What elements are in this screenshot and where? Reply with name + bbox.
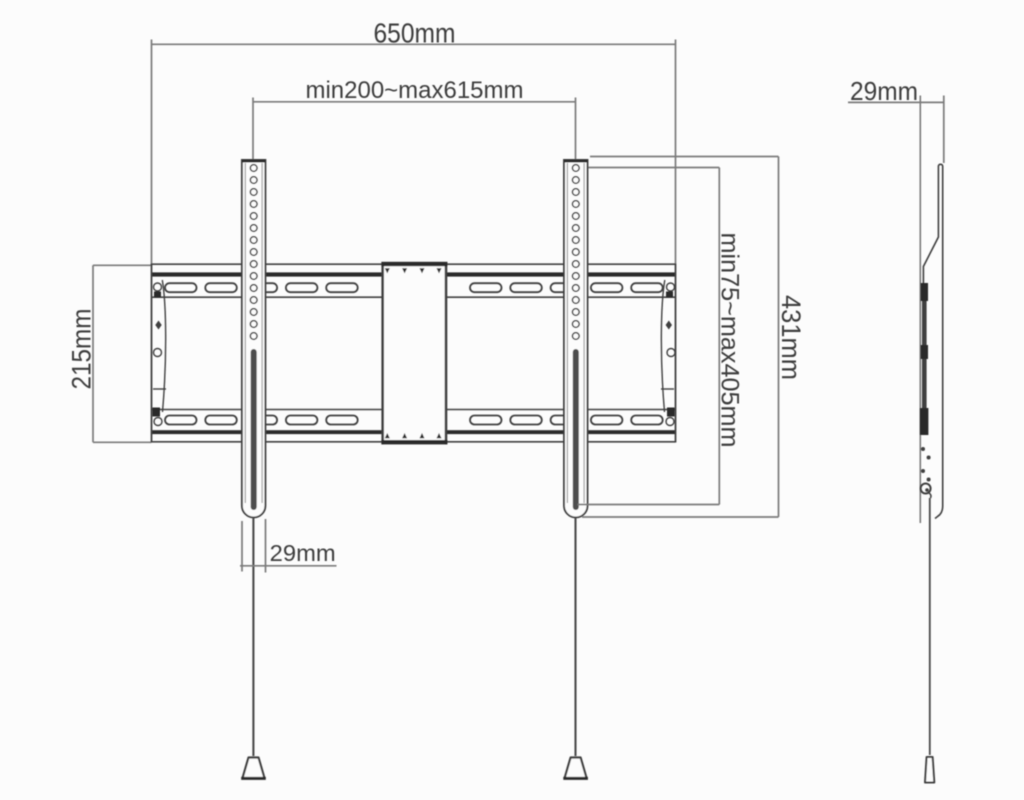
svg-text:431mm: 431mm [776,295,806,380]
svg-text:650mm: 650mm [374,18,456,49]
svg-text:29mm: 29mm [270,540,336,566]
svg-text:min75~max405mm: min75~max405mm [716,233,744,448]
svg-text:min200~max615mm: min200~max615mm [306,77,524,104]
svg-text:215mm: 215mm [67,309,97,390]
svg-text:29mm: 29mm [850,76,918,106]
